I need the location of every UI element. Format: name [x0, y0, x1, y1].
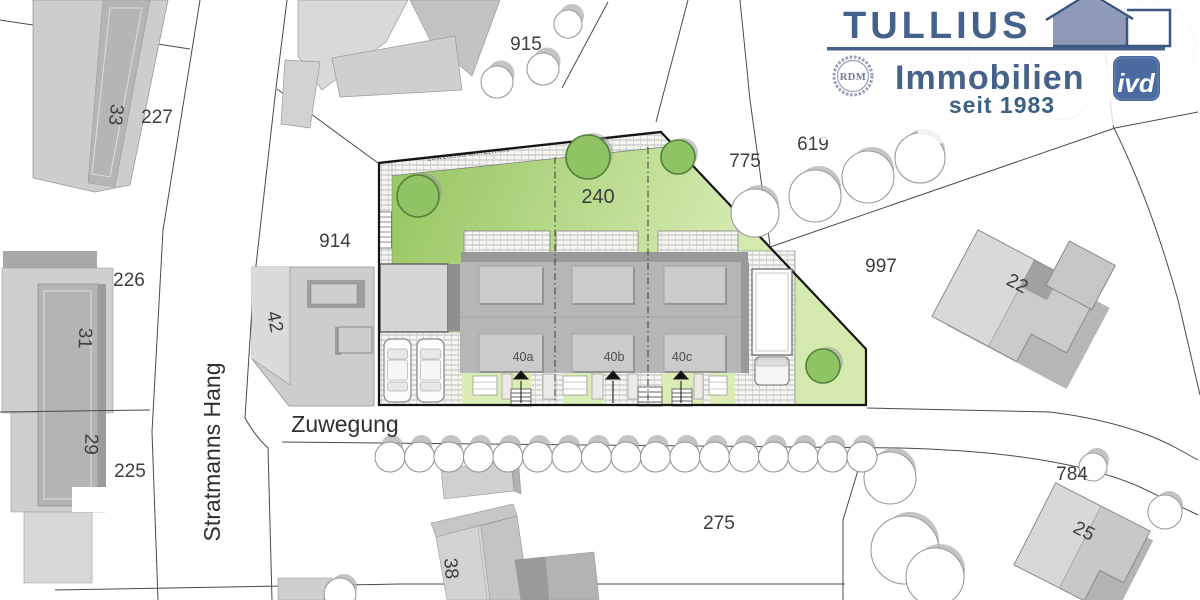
parcel-label-775: 775 [729, 151, 761, 172]
parcel-label-29: 29 [80, 433, 102, 455]
tree [566, 135, 610, 179]
house-number-40a: 40a [513, 350, 534, 364]
parcel-label-240: 240 [581, 186, 614, 208]
tree [397, 175, 439, 217]
building-33 [33, 0, 168, 192]
parcel-label-31: 31 [74, 327, 96, 349]
street-label-stratmanns-hang: Stratmanns Hang [199, 363, 225, 542]
parcel-label-38: 38 [439, 557, 462, 580]
logo-brand-text: TULLIUS [843, 5, 1031, 47]
parcel-label-915: 915 [510, 34, 542, 55]
boundary-line [656, 0, 688, 122]
building-31-29 [2, 251, 113, 583]
tree [806, 349, 840, 383]
hedge-row [375, 435, 877, 472]
parcel-label-914: 914 [319, 231, 351, 252]
rdm-seal: RDM [834, 57, 872, 95]
parcel-label-275: 275 [703, 513, 735, 534]
parcel-label-225: 225 [114, 461, 146, 482]
house-shadow-right [741, 262, 749, 374]
house-number-40b: 40b [604, 350, 625, 364]
site-plan: 22 25 ZUWEGUNG MITTELHAUS [0, 0, 1200, 600]
parcel-label-226: 226 [113, 270, 145, 291]
road-west-edge [152, 0, 200, 600]
delivery-truck [752, 269, 792, 385]
boundary-line [1113, 126, 1200, 395]
logo-since-text: seit 1983 [949, 92, 1055, 118]
rdm-seal-text: RDM [840, 72, 867, 83]
road-north-edge [867, 408, 1198, 460]
ivd-badge: ivd [1113, 56, 1160, 101]
parcel-label-997: 997 [865, 256, 897, 277]
garage [380, 264, 448, 332]
boundary-line [843, 457, 862, 600]
parcel-label-42: 42 [262, 309, 287, 334]
logo: TULLIUS RDM Immobilien ivd seit 1983 [798, 0, 1200, 146]
street-label-zuwegung: Zuwegung [291, 411, 398, 437]
site-plan-canvas: 22 25 ZUWEGUNG MITTELHAUS [0, 0, 1200, 600]
parcel-label-33: 33 [104, 103, 127, 127]
ivd-badge-text: ivd [1117, 68, 1156, 98]
logo-divider [827, 47, 1165, 51]
side-stairs [380, 212, 392, 248]
row-houses: 40a 40b 40c [460, 252, 749, 406]
parked-car [384, 339, 411, 402]
house-number-40c: 40c [672, 350, 692, 364]
building-42 [252, 267, 374, 406]
house-shadow-top [461, 252, 748, 262]
building-22: 22 [931, 201, 1128, 389]
garage-shadow [448, 264, 461, 331]
parked-car [417, 339, 444, 402]
parcel-label-227: 227 [141, 107, 173, 128]
buildings-915-cluster [281, 0, 500, 128]
building-25: 25 [1014, 483, 1156, 600]
parcel-label-784: 784 [1056, 464, 1088, 485]
tree [661, 140, 695, 174]
building-38 [431, 461, 599, 600]
